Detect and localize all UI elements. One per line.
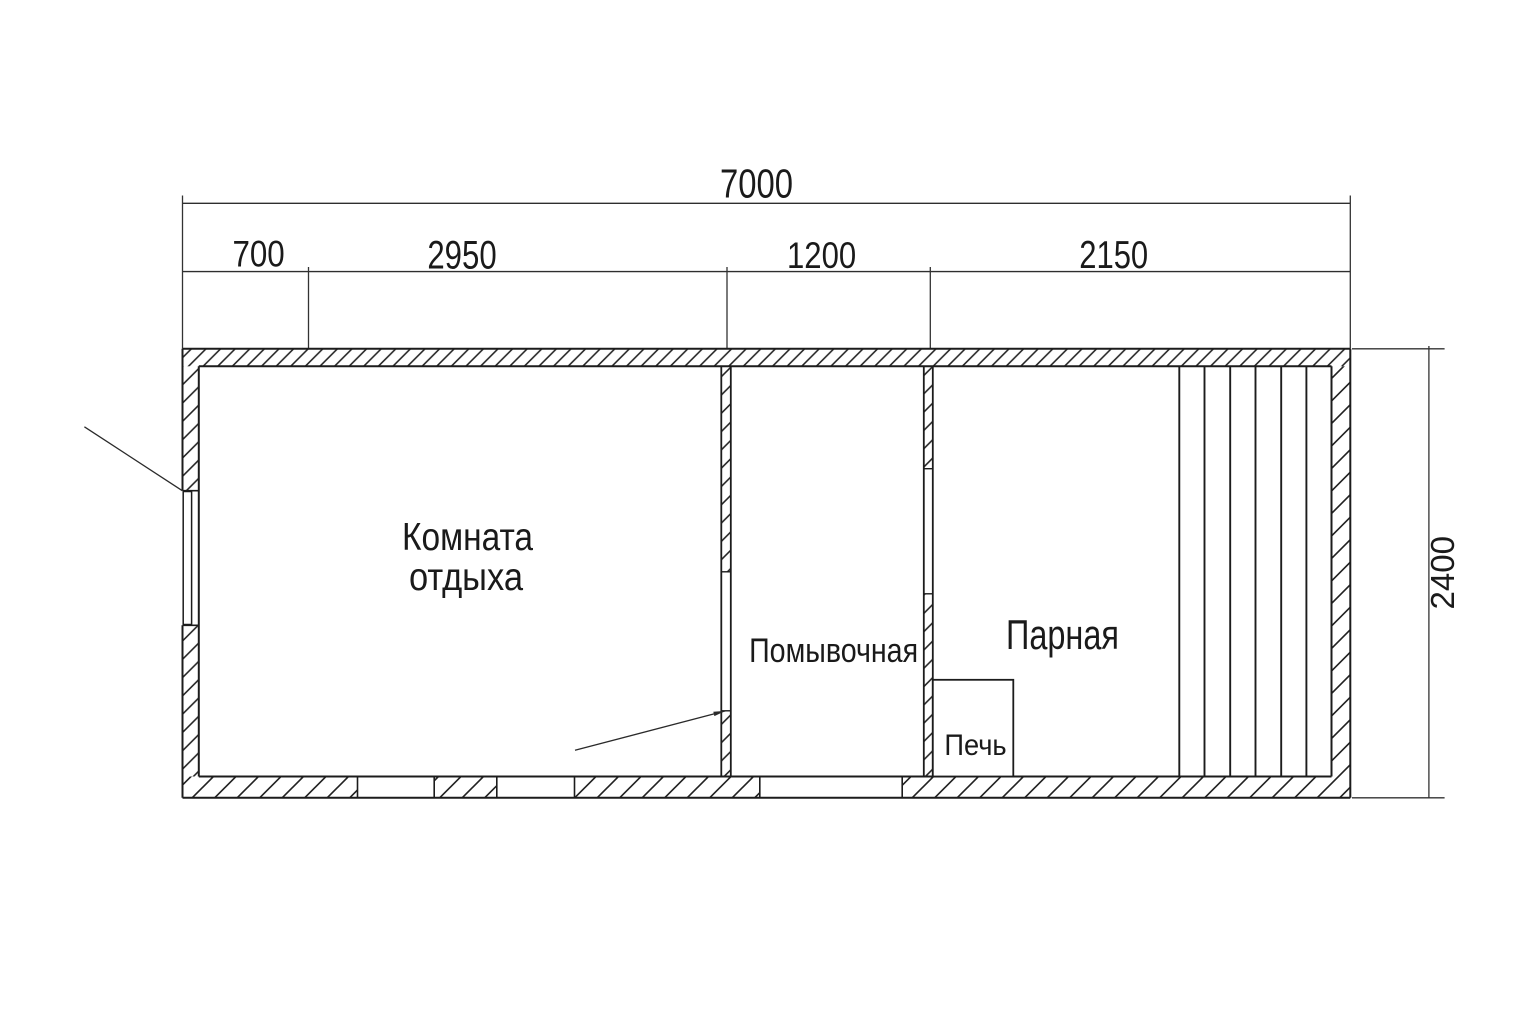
svg-text:Помывочная: Помывочная <box>749 632 918 670</box>
svg-text:1200: 1200 <box>787 235 856 276</box>
svg-text:Печь: Печь <box>944 729 1006 762</box>
svg-text:2950: 2950 <box>427 234 496 278</box>
svg-text:7000: 7000 <box>720 161 793 207</box>
svg-text:отдыха: отдыха <box>409 556 524 599</box>
svg-text:2150: 2150 <box>1079 234 1148 277</box>
svg-text:Комната: Комната <box>402 516 534 559</box>
svg-text:700: 700 <box>232 234 284 275</box>
svg-text:2400: 2400 <box>1424 536 1461 610</box>
svg-text:Парная: Парная <box>1006 611 1119 658</box>
